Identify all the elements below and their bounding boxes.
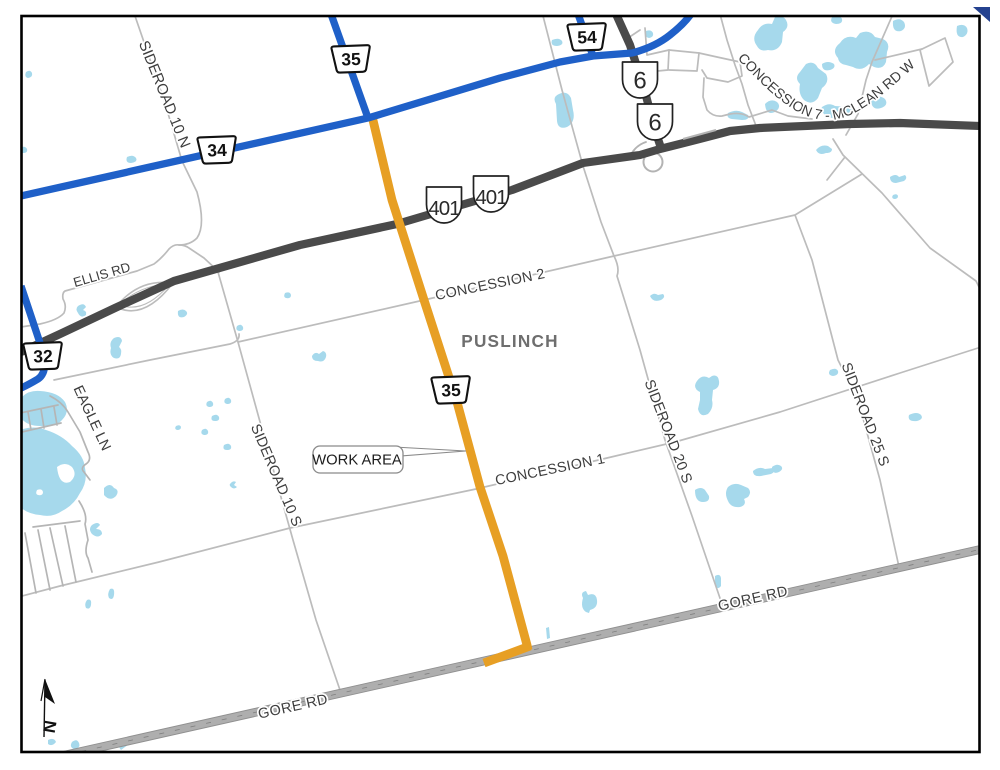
svg-text:6: 6 bbox=[633, 68, 646, 95]
svg-text:34: 34 bbox=[207, 140, 227, 161]
svg-text:54: 54 bbox=[577, 27, 597, 48]
svg-text:PUSLINCH: PUSLINCH bbox=[461, 331, 558, 351]
svg-text:35: 35 bbox=[341, 49, 361, 70]
svg-text:35: 35 bbox=[441, 380, 461, 401]
svg-text:32: 32 bbox=[33, 346, 53, 367]
svg-text:401: 401 bbox=[475, 186, 507, 209]
svg-text:6: 6 bbox=[648, 110, 661, 137]
svg-text:401: 401 bbox=[428, 197, 460, 220]
svg-text:WORK AREA: WORK AREA bbox=[312, 453, 402, 469]
